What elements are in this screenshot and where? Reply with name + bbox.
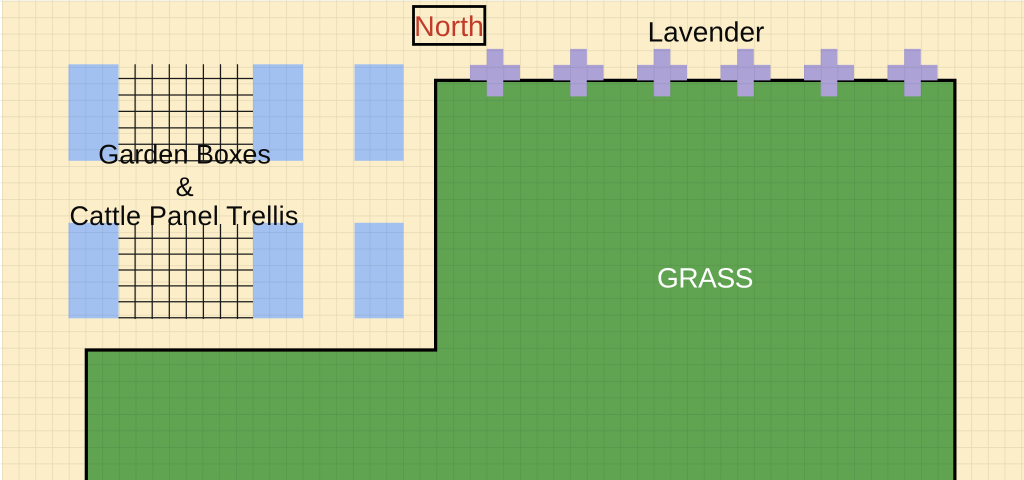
svg-text:Cattle Panel Trellis: Cattle Panel Trellis [69, 201, 298, 231]
svg-text:North: North [414, 11, 484, 43]
svg-text:GRASS: GRASS [657, 263, 753, 294]
svg-text:&: & [176, 172, 194, 202]
svg-text:Lavender: Lavender [648, 17, 765, 48]
svg-text:Garden Boxes: Garden Boxes [98, 140, 271, 170]
